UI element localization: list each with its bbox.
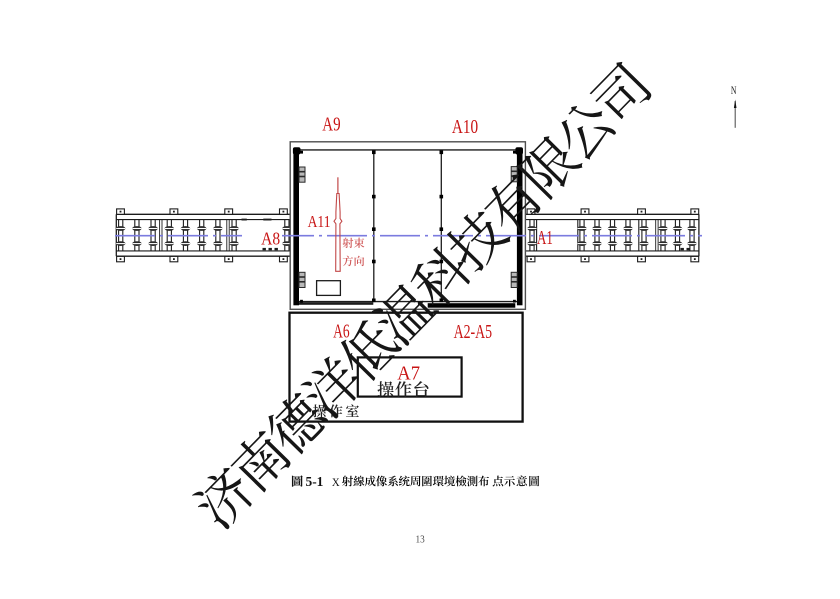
- svg-text:A6: A6: [333, 322, 350, 343]
- svg-text:N: N: [731, 83, 737, 97]
- svg-text:13: 13: [416, 535, 425, 546]
- svg-text:A7: A7: [397, 363, 420, 384]
- svg-text:A2-A5: A2-A5: [454, 322, 493, 343]
- svg-text:A1: A1: [537, 228, 553, 249]
- svg-text:X: X: [332, 475, 340, 489]
- svg-text:A10: A10: [452, 117, 478, 138]
- svg-text:5-1: 5-1: [306, 474, 324, 489]
- svg-text:A11: A11: [308, 212, 331, 231]
- svg-text:A8: A8: [261, 229, 280, 249]
- svg-text:A9: A9: [322, 114, 340, 135]
